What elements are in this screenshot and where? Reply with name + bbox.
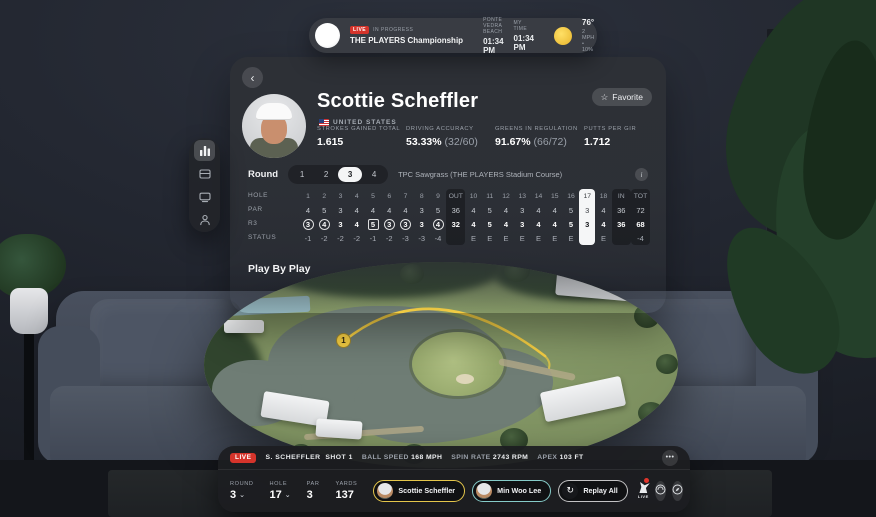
metric-value: 103 FT [560, 454, 584, 461]
sun-weather-icon [554, 27, 572, 45]
par-value: 5 [563, 203, 579, 217]
round-control[interactable]: ROUND 3⌄ [230, 481, 254, 501]
round-tab-2[interactable]: 2 [314, 167, 338, 182]
tournament-status-bar[interactable]: LIVE IN PROGRESS THE PLAYERS Championshi… [309, 18, 597, 53]
status-value: -1 [300, 231, 316, 245]
metric-spin-rate: SPIN RATE 2743 RPM [451, 454, 528, 461]
scorecard-row-labels: HOLE PAR R3 STATUS [248, 189, 300, 245]
scorecard-column-OUT: OUT3632 [446, 189, 465, 245]
par-value: 4 [398, 203, 414, 217]
yards-readout: YARDS 137 [336, 481, 358, 501]
status-value [612, 231, 631, 245]
stat-greens-in-regulation: GREENS IN REGULATION 91.67% (66/72) [495, 126, 584, 148]
status-value: -1 [365, 231, 381, 245]
par-value: 72 [631, 203, 650, 217]
metric-value: 2743 RPM [493, 454, 528, 461]
status-value: E [547, 231, 563, 245]
hole-number: 8 [414, 189, 430, 203]
round-control-value: 3 [230, 489, 236, 501]
scorecard-column-2: 254-2 [316, 189, 332, 245]
score-value: 4 [547, 217, 563, 231]
par-value: 3 [307, 489, 313, 501]
scorecard-table: HOLE PAR R3 STATUS 143-1254-2333-2444-25… [248, 189, 650, 245]
par-value: 4 [300, 203, 316, 217]
bunker [456, 374, 474, 384]
scorecard-column-12: 1244E [498, 189, 514, 245]
metric-ball-speed: BALL SPEED 168 MPH [362, 454, 442, 461]
stat-value: 1.615 [317, 136, 343, 148]
score-value: 3 [398, 217, 414, 231]
live-badge: LIVE [350, 26, 369, 34]
scorecard-column-16: 1655E [563, 189, 579, 245]
par-value: 5 [316, 203, 332, 217]
metric-apex: APEX 103 FT [537, 454, 583, 461]
shot-number-marker[interactable]: 1 [336, 333, 351, 348]
round-selector-row: Round 1234 TPC Sawgrass (THE PLAYERS Sta… [248, 165, 648, 184]
scorecard-column-7: 743-3 [398, 189, 414, 245]
par-value: 3 [414, 203, 430, 217]
favorite-button[interactable]: ☆ Favorite [592, 88, 652, 106]
tree [638, 402, 664, 424]
score-value: 68 [631, 217, 650, 231]
hole-control-label: HOLE [270, 481, 291, 487]
scorecard-column-13: 1333E [514, 189, 530, 245]
stat-driving-accuracy: DRIVING ACCURACY 53.33% (32/60) [406, 126, 495, 148]
row-label-status: STATUS [248, 231, 300, 245]
live-badge: LIVE [230, 453, 256, 463]
round-tab-1[interactable]: 1 [290, 167, 314, 182]
shot-control-bar: LIVE S. SCHEFFLER SHOT 1 BALL SPEED 168 … [218, 446, 690, 512]
status-value: E [482, 231, 498, 245]
par-value: 4 [547, 203, 563, 217]
yards-value: 137 [336, 489, 354, 501]
sidebar-item-leaderboard[interactable] [194, 140, 215, 161]
tournament-logo [315, 23, 340, 48]
hole-number: 7 [398, 189, 414, 203]
status-value [446, 231, 465, 245]
scorecard-column-18: 1844E [596, 189, 612, 245]
round-status: IN PROGRESS [373, 27, 413, 33]
status-value: E [596, 231, 612, 245]
scorecard-grid-icon [199, 168, 211, 180]
location-time: 01:34 PM [483, 37, 503, 55]
island-green [412, 332, 504, 396]
score-value: 36 [612, 217, 631, 231]
scorecard-column-15: 1544E [547, 189, 563, 245]
par-label: PAR [307, 481, 320, 487]
broadcast-view-button[interactable] [655, 481, 666, 501]
play-by-play-heading[interactable]: Play By Play [248, 263, 310, 275]
score-value: 32 [446, 217, 465, 231]
round-tab-3[interactable]: 3 [338, 167, 362, 182]
player-name: Scottie Scheffler [317, 90, 478, 113]
score-value: 3 [300, 217, 316, 231]
par-readout: PAR 3 [307, 481, 320, 501]
hole-number: IN [612, 189, 631, 203]
row-label-round: R3 [248, 217, 300, 231]
status-value: -2 [381, 231, 397, 245]
notification-dot [644, 478, 649, 483]
par-value: 3 [579, 203, 595, 217]
scorecard-columns: 143-1254-2333-2444-2545-1643-2743-3833-3… [300, 189, 650, 245]
par-value: 3 [333, 203, 349, 217]
status-value: -3 [398, 231, 414, 245]
hole-number: OUT [446, 189, 465, 203]
yards-label: YARDS [336, 481, 358, 487]
pga-tour-live-button[interactable]: LIVE [637, 478, 650, 504]
score-value: 5 [365, 217, 381, 231]
row-label-par: PAR [248, 203, 300, 217]
stat-putts-per-gir: PUTTS PER GIR 1.712 [584, 126, 673, 148]
hole-number: 12 [498, 189, 514, 203]
my-time-label: MY TIME [514, 20, 534, 32]
player-country: UNITED STATES [333, 119, 397, 126]
course-name: TPC Sawgrass (THE PLAYERS Stadium Course… [398, 170, 562, 179]
info-icon[interactable]: i [635, 168, 648, 181]
temperature: 76° [582, 18, 594, 27]
sidebar-item-watch[interactable] [194, 186, 215, 207]
score-value: 4 [498, 217, 514, 231]
player-avatar [242, 94, 306, 158]
stat-value: 53.33% [406, 136, 442, 148]
score-value: 4 [596, 217, 612, 231]
stat-label: PUTTS PER GIR [584, 126, 673, 132]
scorecard-column-1: 143-1 [300, 189, 316, 245]
location-label: PONTE VEDRA BEACH [483, 17, 503, 35]
left-plant-stand [24, 334, 34, 462]
scorecard-column-TOT: TOT7268-4 [631, 189, 650, 245]
scorecard-column-8: 833-3 [414, 189, 430, 245]
status-value: -3 [414, 231, 430, 245]
hole-number: 1 [300, 189, 316, 203]
par-value: 4 [531, 203, 547, 217]
par-value: 4 [381, 203, 397, 217]
hole-number: 11 [482, 189, 498, 203]
round-tab-4[interactable]: 4 [362, 167, 386, 182]
score-value: 4 [466, 217, 482, 231]
status-value: -2 [349, 231, 365, 245]
navigation-rail [189, 138, 220, 232]
replay-all-label: Replay All [583, 486, 617, 495]
score-value: 5 [482, 217, 498, 231]
chevron-down-icon: ⌄ [285, 491, 291, 499]
hole-number: 9 [430, 189, 446, 203]
hole-number: 10 [466, 189, 482, 203]
hole-number: 3 [333, 189, 349, 203]
stat-value: 1.712 [584, 136, 610, 148]
metric-label: BALL SPEED [362, 454, 409, 461]
par-value: 5 [482, 203, 498, 217]
replay-all-button[interactable]: ↻ Replay All [558, 480, 627, 502]
player-chip-avatar [476, 483, 492, 499]
back-button[interactable]: ‹ [242, 67, 263, 88]
tv-icon [199, 191, 211, 203]
scorecard-column-14: 1444E [531, 189, 547, 245]
score-value: 4 [531, 217, 547, 231]
broadcast-icon [655, 482, 666, 500]
pga-tour-logo-icon [637, 482, 650, 493]
player-chip-name: Scottie Scheffler [398, 486, 455, 495]
usa-flag-icon [319, 119, 329, 126]
tree [656, 354, 678, 374]
status-value: E [563, 231, 579, 245]
grandstand [315, 418, 362, 439]
par-value: 3 [514, 203, 530, 217]
par-value: 36 [446, 203, 465, 217]
scorecard-column-IN: IN3636 [612, 189, 631, 245]
scorecard-column-11: 1155E [482, 189, 498, 245]
chevron-down-icon: ⌄ [239, 491, 245, 499]
par-value: 4 [596, 203, 612, 217]
my-time-value: 01:34 PM [514, 34, 534, 52]
leaderboard-icon [199, 145, 211, 157]
pga-live-label: LIVE [638, 494, 649, 499]
hole-number: 2 [316, 189, 332, 203]
metric-label: SPIN RATE [451, 454, 490, 461]
score-value: 3 [381, 217, 397, 231]
score-value: 4 [430, 217, 446, 231]
stat-strokes-gained: STROKES GAINED TOTAL 1.615 [317, 126, 406, 148]
scorecard-column-4: 444-2 [349, 189, 365, 245]
star-icon: ☆ [601, 92, 609, 103]
hole-control[interactable]: HOLE 17⌄ [270, 481, 291, 501]
hole-number: 5 [365, 189, 381, 203]
hole-number: 14 [531, 189, 547, 203]
scorecard-column-10: 1044E [466, 189, 482, 245]
round-label: Round [248, 169, 278, 180]
compass-icon [672, 482, 683, 500]
stat-extra: (66/72) [534, 136, 567, 148]
player-stats-row: STROKES GAINED TOTAL 1.615 DRIVING ACCUR… [317, 126, 673, 148]
grandstand [224, 320, 264, 333]
status-value: E [466, 231, 482, 245]
metric-label: APEX [537, 454, 557, 461]
hole-number: 15 [547, 189, 563, 203]
row-label-hole: HOLE [248, 189, 300, 203]
hole-number: 17 [579, 189, 595, 203]
hole-number: 13 [514, 189, 530, 203]
tournament-name: THE PLAYERS Championship [350, 36, 463, 45]
scorecard-column-3: 333-2 [333, 189, 349, 245]
status-value: -4 [631, 231, 650, 245]
scorecard-column-6: 643-2 [381, 189, 397, 245]
player-chip-min-woo-lee[interactable]: Min Woo Lee [472, 480, 551, 502]
compass-view-button[interactable] [672, 481, 683, 501]
score-value: 3 [333, 217, 349, 231]
hole-number: 6 [381, 189, 397, 203]
player-chip-avatar [377, 483, 393, 499]
stat-value: 91.67% [495, 136, 531, 148]
par-value: 4 [498, 203, 514, 217]
scorecard-column-9: 954-4 [430, 189, 446, 245]
vision-os-scene: 1 LIVE IN PROGRESS THE PLAYERS Champions… [0, 0, 876, 517]
scorecard-column-17[interactable]: 1733 [579, 189, 595, 245]
stat-extra: (32/60) [445, 136, 478, 148]
round-control-label: ROUND [230, 481, 254, 487]
hole-number: TOT [631, 189, 650, 203]
hole-number: 4 [349, 189, 365, 203]
status-value: -2 [316, 231, 332, 245]
sidebar-item-scorecards[interactable] [194, 163, 215, 184]
status-value: -2 [333, 231, 349, 245]
hole-number: 16 [563, 189, 579, 203]
round-segmented-control: 1234 [288, 165, 388, 184]
score-value: 4 [316, 217, 332, 231]
status-value: E [498, 231, 514, 245]
par-value: 36 [612, 203, 631, 217]
par-value: 4 [349, 203, 365, 217]
score-value: 5 [563, 217, 579, 231]
player-detail-panel: ‹ Scottie Scheffler UNITED STATES ☆ Favo… [230, 57, 666, 313]
player-chip-name: Min Woo Lee [497, 486, 541, 495]
stat-label: DRIVING ACCURACY [406, 126, 495, 132]
favorite-label: Favorite [612, 92, 643, 102]
person-icon [199, 214, 211, 226]
shot-info-row: LIVE S. SCHEFFLER SHOT 1 BALL SPEED 168 … [218, 446, 690, 470]
par-value: 5 [430, 203, 446, 217]
status-value: E [514, 231, 530, 245]
stat-label: GREENS IN REGULATION [495, 126, 584, 132]
par-value: 4 [466, 203, 482, 217]
score-value: 3 [514, 217, 530, 231]
avatar-cap [256, 103, 292, 120]
shot-player: S. SCHEFFLER [265, 454, 320, 461]
hole-control-value: 17 [270, 489, 282, 501]
score-value: 4 [349, 217, 365, 231]
status-value: -4 [430, 231, 446, 245]
shot-number: SHOT 1 [325, 454, 353, 461]
playback-controls-row: ROUND 3⌄ HOLE 17⌄ PAR 3 YARDS 137 Scotti… [218, 470, 690, 511]
stat-label: STROKES GAINED TOTAL [317, 126, 406, 132]
metric-value: 168 MPH [411, 454, 442, 461]
score-value: 3 [414, 217, 430, 231]
left-plant-pot [10, 288, 48, 334]
weather-detail: 2 MPH • 10% [582, 29, 594, 53]
status-value: E [531, 231, 547, 245]
par-value: 4 [365, 203, 381, 217]
hole-number: 18 [596, 189, 612, 203]
more-options-button[interactable]: ••• [662, 450, 678, 466]
player-chip-scottie-scheffler[interactable]: Scottie Scheffler [373, 480, 465, 502]
score-value: 3 [579, 217, 595, 231]
replay-icon: ↻ [562, 483, 578, 499]
sidebar-item-players[interactable] [194, 209, 215, 230]
status-value [579, 231, 595, 245]
scorecard-column-5: 545-1 [365, 189, 381, 245]
